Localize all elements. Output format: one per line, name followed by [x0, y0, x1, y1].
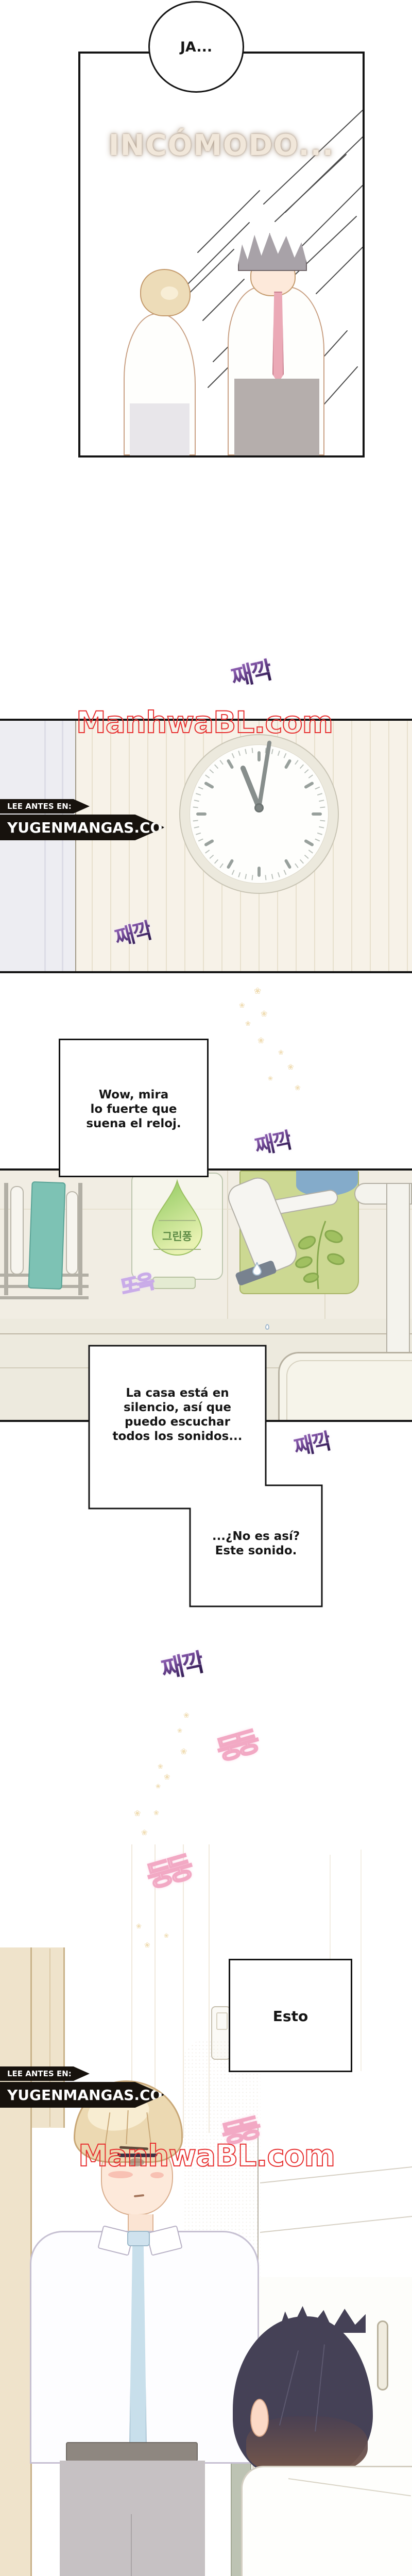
- badge-lee-antes-1: LEE ANTES EN:: [0, 799, 90, 814]
- scene-bottom: 둥둥: [0, 1834, 412, 2576]
- badge-yugenmangas-2: YUGENMANGAS.COM: [0, 2082, 165, 2108]
- sparkle-icon: ❀: [156, 1783, 161, 1790]
- door-handle: [377, 2320, 388, 2391]
- door-frame-left: [0, 1947, 32, 2576]
- cutting-board: [28, 1181, 65, 1290]
- speech-wow-box: Wow, mira lo fuerte que suena el reloj.: [59, 1039, 209, 1177]
- badge-lee-antes-2-label: LEE ANTES EN:: [7, 2069, 72, 2078]
- plate: [66, 1191, 78, 1275]
- badge-lee-antes-1-label: LEE ANTES EN:: [7, 802, 72, 811]
- speech-wow: Wow, mira lo fuerte que suena el reloj.: [60, 1088, 207, 1131]
- sfx-tick-5: 째깍: [158, 1641, 207, 1686]
- sparkle-icon: ❀: [295, 1084, 301, 1092]
- sparkle-icon: ❀: [180, 1747, 187, 1756]
- sparkle-icon: ❀: [177, 1727, 182, 1734]
- watermark-1: ManhwaBL.com: [76, 705, 333, 740]
- comic-page: INCÓMODO... JA... 째깍 ManhwaBL.com: [0, 0, 412, 2576]
- sparkle-icon: ❀: [268, 1075, 273, 1082]
- speech-wow-line: suena el reloj.: [60, 1116, 207, 1131]
- sparkle-icon: ❀: [141, 1828, 148, 1837]
- sparkle-icon: ❀: [278, 1049, 284, 1057]
- ja-bubble: JA...: [148, 1, 244, 93]
- speech-esto: Esto: [230, 2008, 351, 2025]
- char-dark-ear: [250, 2399, 269, 2437]
- sparkle-icon: ❀: [245, 1020, 251, 1028]
- speech-esto-box: Esto: [229, 1959, 352, 2072]
- sparkle-icon: ❀: [287, 1062, 294, 1072]
- wall-line: [360, 1850, 362, 2071]
- sfx-tick-4: 째깍: [290, 1423, 333, 1462]
- sparkle-icon: ❀: [239, 1002, 245, 1010]
- sfx-thump-1: 둥둥: [212, 1721, 258, 1768]
- char-blond-pants: [60, 2461, 205, 2576]
- clock-face: [190, 744, 329, 884]
- ja-text: JA...: [180, 39, 212, 55]
- speech-wow-line: Wow, mira: [60, 1088, 207, 1102]
- plate: [10, 1186, 24, 1275]
- sfx-tick-3: 째깍: [251, 1123, 294, 1161]
- sparkle-icon: ❀: [158, 1763, 163, 1771]
- badge-lee-antes-2: LEE ANTES EN:: [0, 2066, 90, 2081]
- clock-center-cap: [254, 803, 264, 812]
- speech-silence-line: silencio, así que: [91, 1400, 264, 1415]
- speech-silence-line: La casa está en: [91, 1386, 264, 1400]
- panel-awkward: INCÓMODO...: [78, 52, 365, 457]
- speech-silence-line: puedo escuchar: [91, 1415, 264, 1429]
- speech-sound-line: ...¿No es así?: [192, 1529, 320, 1544]
- speech-sound-line: Este sonido.: [192, 1544, 320, 1558]
- sparkle-icon: ❀: [164, 1932, 169, 1939]
- badge-yugenmangas-1: YUGENMANGAS.COM: [0, 815, 165, 840]
- char-dark-shirt: [241, 2466, 412, 2576]
- sparkle-icon: ❀: [254, 986, 261, 996]
- speech-sound: ...¿No es así? Este sonido.: [192, 1529, 320, 1558]
- soap-label: 그린퐁: [131, 1228, 223, 1244]
- lbox-outline: [88, 1344, 324, 1609]
- water-drop-icon: [265, 1324, 269, 1330]
- sparkle-icon: ❀: [134, 1808, 141, 1818]
- soap-droplet-icon: [148, 1179, 206, 1256]
- sparkle-icon: ❀: [136, 1923, 142, 1930]
- wall-left: [0, 721, 76, 971]
- sparkle-icon: ❀: [153, 1809, 159, 1817]
- char-blond-tie-knot: [127, 2231, 150, 2246]
- caption-incomodo: INCÓMODO...: [80, 129, 363, 162]
- sparkle-icon: ❀: [261, 1009, 267, 1019]
- sparkle-icon: ❀: [164, 1772, 170, 1782]
- water-drop-icon: [252, 1261, 262, 1276]
- sparkle-icon: ❀: [183, 1711, 190, 1720]
- speech-wow-line: lo fuerte que: [60, 1102, 207, 1116]
- sparkle-icon: ❀: [144, 1941, 150, 1950]
- sfx-drip: 또옥: [118, 1265, 155, 1300]
- char-blond-belt: [66, 2442, 198, 2462]
- sparkle-icon: ❀: [257, 1036, 264, 1045]
- sfx-tick-1: 째깍: [228, 651, 274, 693]
- speech-silence-line: todos los sonidos...: [91, 1429, 264, 1444]
- speech-silence: La casa está en silencio, así que puedo …: [91, 1386, 264, 1444]
- watermark-2: ManhwaBL.com: [78, 2138, 335, 2173]
